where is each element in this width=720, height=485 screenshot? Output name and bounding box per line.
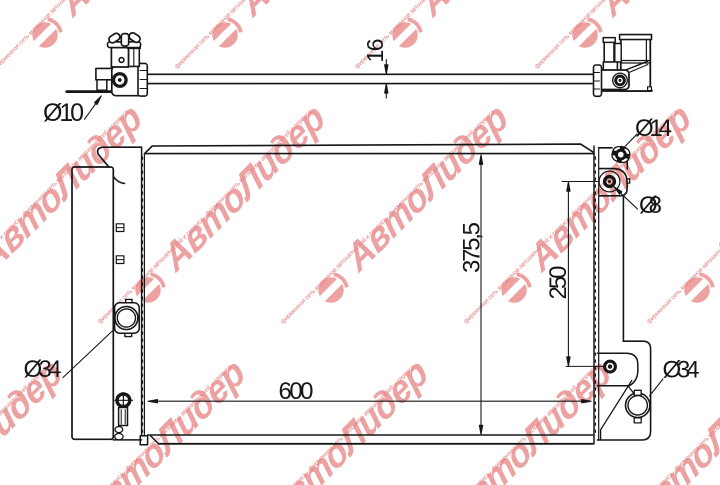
svg-text:600: 600: [279, 378, 314, 405]
svg-text:Ø8: Ø8: [639, 192, 662, 219]
svg-text:375,5: 375,5: [459, 222, 486, 273]
svg-text:16: 16: [362, 39, 388, 63]
svg-text:250: 250: [545, 266, 572, 300]
svg-text:Ø14: Ø14: [635, 115, 672, 142]
svg-text:Ø34: Ø34: [24, 356, 62, 383]
svg-text:Ø34: Ø34: [663, 357, 700, 384]
svg-text:Ø10: Ø10: [43, 99, 84, 127]
